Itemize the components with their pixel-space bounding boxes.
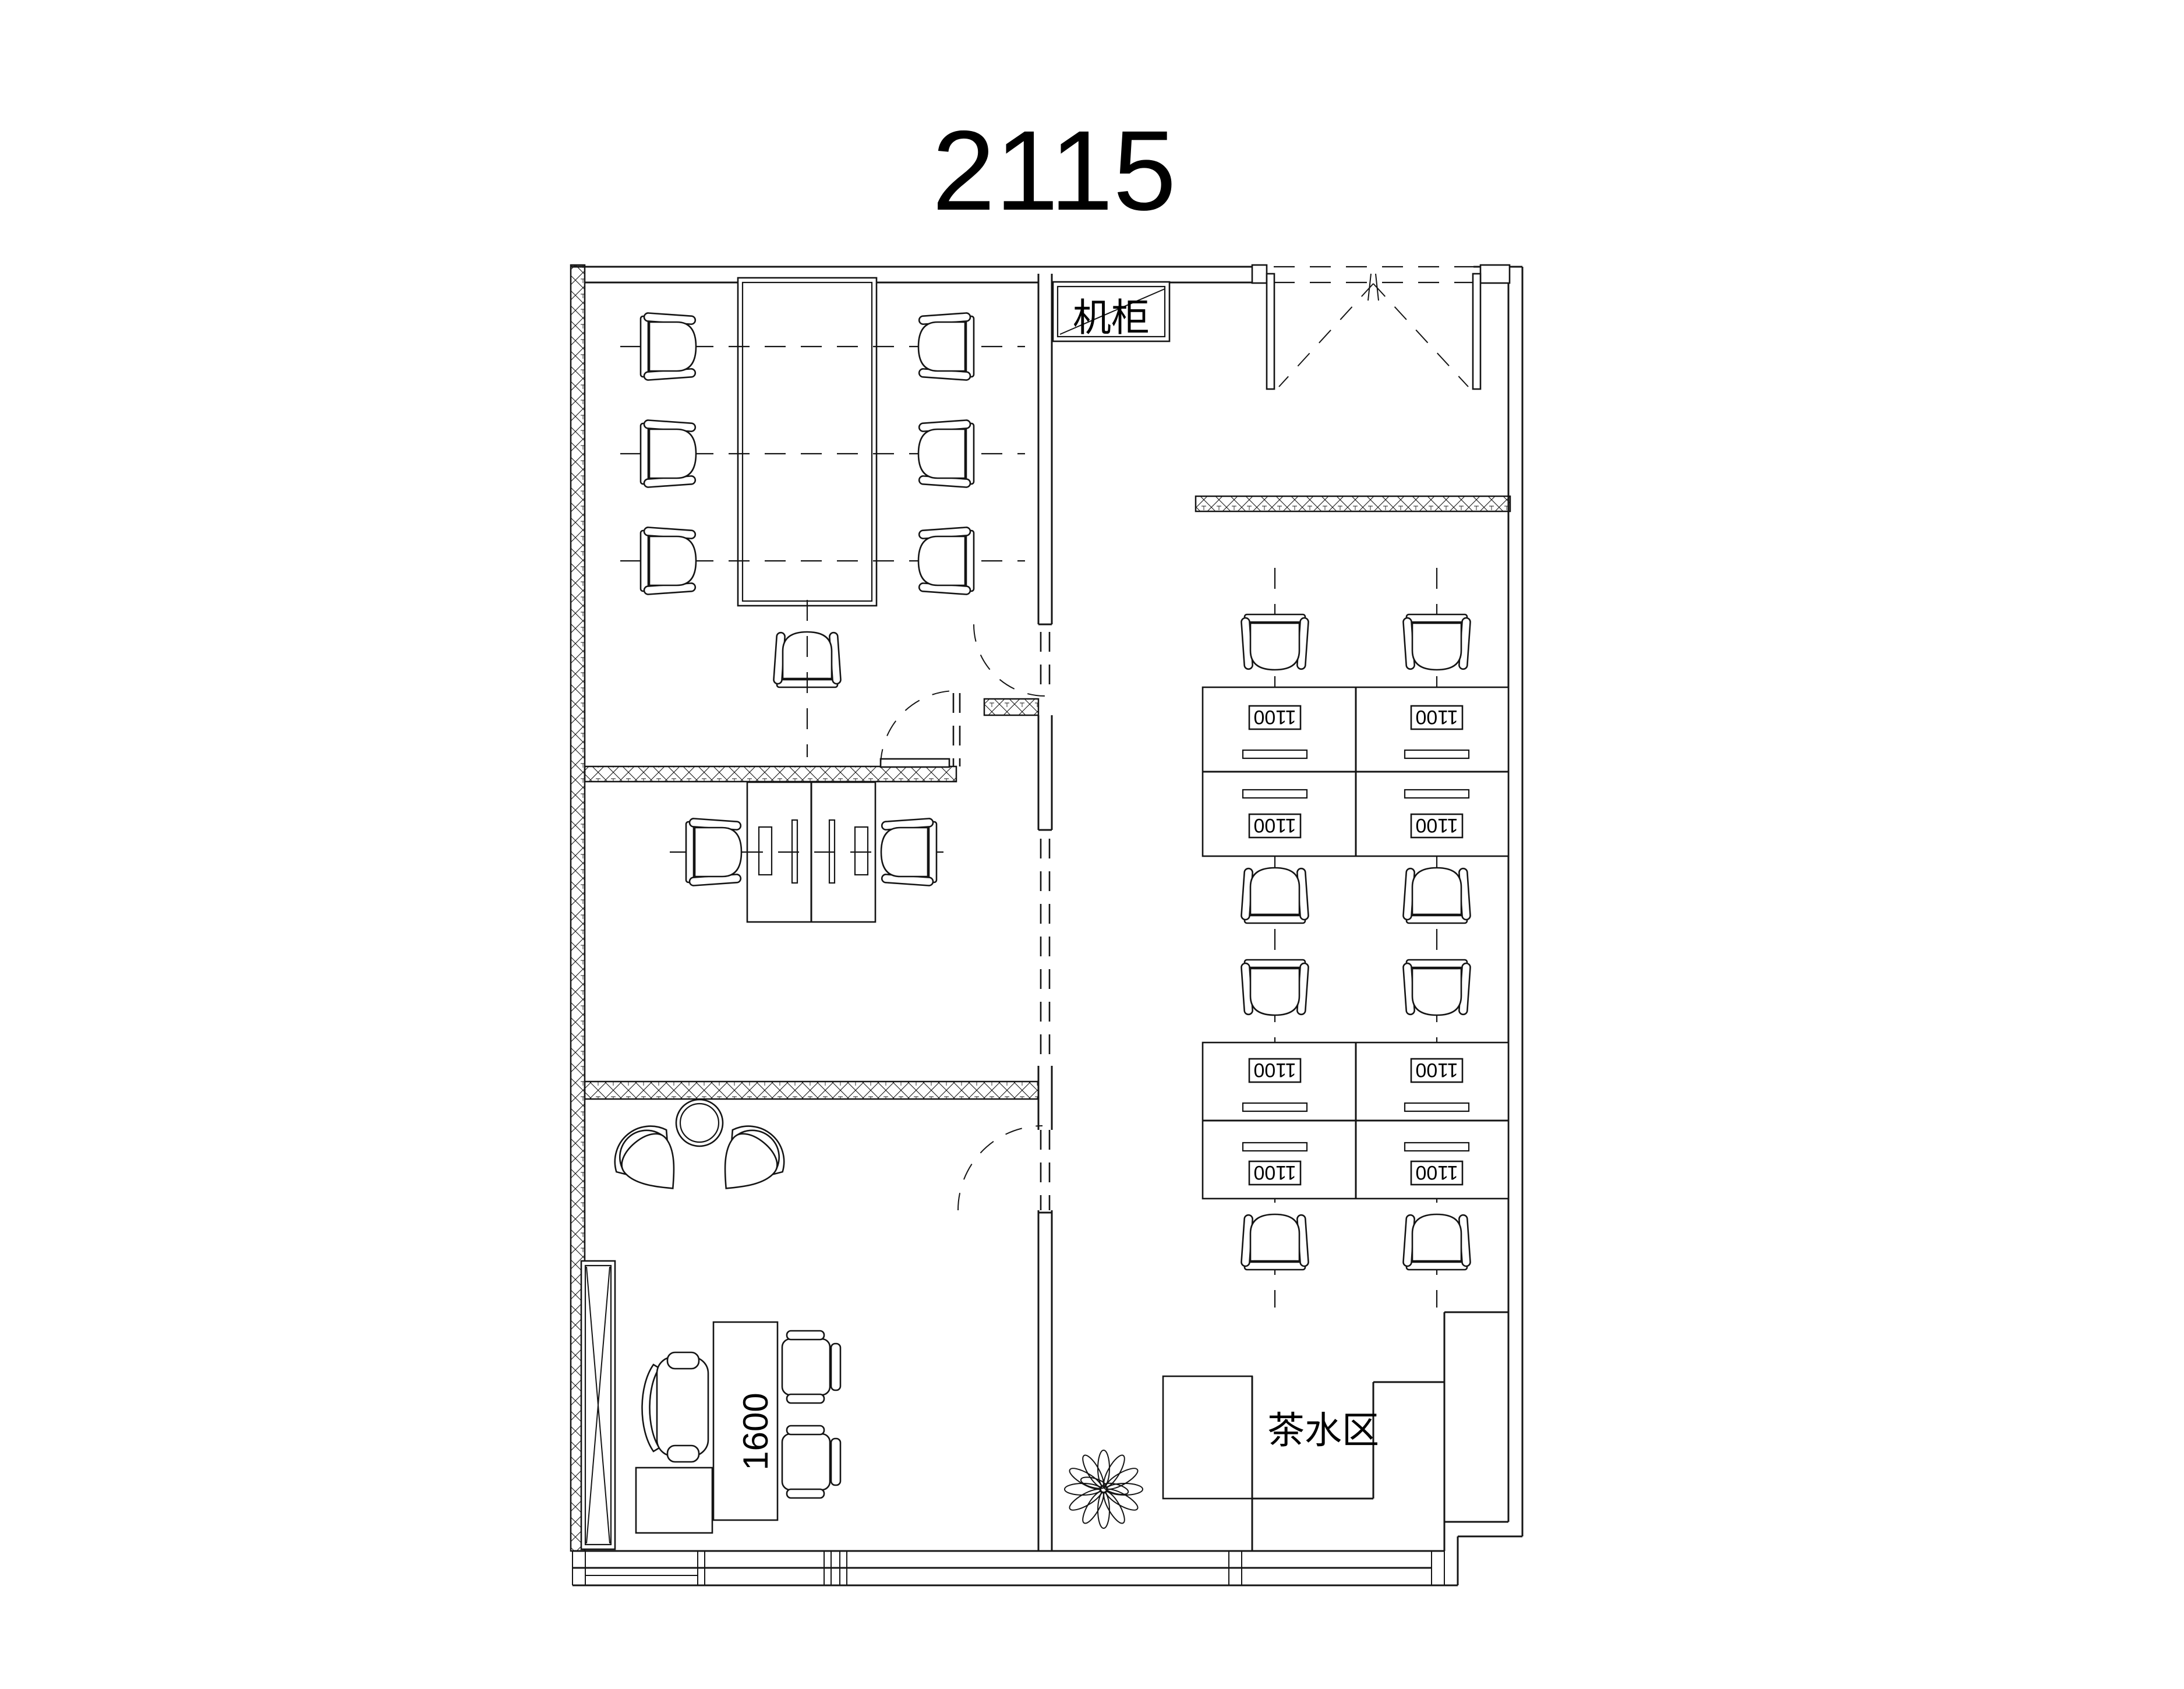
svg-text:1100: 1100 [1415, 1059, 1458, 1081]
tea-area-label: 茶水区 [1267, 1409, 1379, 1451]
task-chair [1403, 614, 1471, 670]
meeting-chair [641, 313, 696, 380]
entry-door-leaf-left [1267, 274, 1274, 389]
task-chair [1241, 868, 1309, 923]
meeting-chair [641, 527, 696, 595]
guest-chair [782, 1331, 840, 1403]
desk-dimension-label: 1600 [736, 1393, 775, 1470]
office-chair [881, 818, 936, 886]
svg-text:1100: 1100 [1253, 1161, 1296, 1183]
lounge-area [603, 1100, 797, 1209]
task-chair [1241, 960, 1309, 1015]
desk-size-tag: 1100 [1411, 814, 1462, 838]
svg-text:1100: 1100 [1415, 814, 1458, 836]
meeting-room-door-arc [974, 624, 1045, 696]
workstation-bank: 1100 1100 1100 1100 [1203, 1043, 1508, 1199]
svg-text:1100: 1100 [1415, 1161, 1458, 1183]
plant-icon [1065, 1450, 1143, 1528]
middle-office [670, 782, 955, 922]
open-office: 1100 1100 1100 1100 1100 1100 1100 1100 [1196, 496, 1510, 1308]
task-chair [1403, 960, 1471, 1015]
desk-return [636, 1468, 712, 1533]
entry-double-door [1267, 274, 1480, 389]
meeting-chair [641, 420, 696, 487]
entry-door-leaf-right [1473, 274, 1480, 389]
svg-text:1100: 1100 [1253, 814, 1296, 836]
svg-text:1100: 1100 [1253, 706, 1296, 728]
x-cabinet [581, 1261, 615, 1549]
office-door [881, 691, 960, 767]
round-side-table [676, 1100, 723, 1146]
task-chair [1241, 1214, 1309, 1270]
office-door-leaf [881, 759, 949, 767]
office-door-arc [881, 691, 956, 766]
screen-wall [1196, 496, 1510, 511]
task-chair [1241, 614, 1309, 670]
desk-size-tag: 1100 [1249, 1059, 1300, 1082]
meeting-office-divider-wall [585, 766, 956, 782]
lounge-top-wall [585, 1082, 1038, 1099]
meeting-room [620, 278, 1025, 757]
office-chair [686, 818, 741, 886]
meeting-chair [918, 313, 974, 380]
page-title: 2115 [932, 107, 1176, 234]
bottom-window-wall [572, 1551, 1458, 1585]
divider-stub-wall [984, 699, 1038, 715]
executive-office: 1600 [581, 1261, 840, 1549]
entry-right-jamb [1480, 265, 1510, 283]
task-chair [1403, 1214, 1471, 1270]
executive-desk: 1600 [713, 1322, 778, 1520]
desk-size-tag: 1100 [1411, 1059, 1462, 1082]
task-chair [1403, 868, 1471, 923]
desk-size-tag: 1100 [1411, 1161, 1462, 1185]
server-cabinet: 机柜 [1053, 282, 1169, 341]
lounge-door-arc [958, 1126, 1042, 1210]
desk-size-tag: 1100 [1249, 1161, 1300, 1185]
server-cabinet-label: 机柜 [1073, 296, 1150, 339]
entry-left-jamb [1252, 265, 1267, 283]
executive-chair [642, 1352, 709, 1462]
desk-size-tag: 1100 [1411, 706, 1462, 729]
meeting-chair [918, 527, 974, 595]
desk-size-tag: 1100 [1249, 814, 1300, 838]
guest-chair [782, 1426, 840, 1498]
corridor-partition [1038, 274, 1052, 1551]
workstation-bank: 1100 1100 1100 1100 [1203, 687, 1508, 856]
svg-text:1100: 1100 [1415, 706, 1458, 728]
meeting-chair [918, 420, 974, 487]
tea-area: 茶水区 [1163, 1312, 1508, 1551]
svg-text:1100: 1100 [1253, 1059, 1296, 1081]
desk-size-tag: 1100 [1249, 706, 1300, 729]
conference-table [738, 278, 877, 606]
tea-cabinet [1163, 1376, 1252, 1499]
floor-plan: 2115 [0, 0, 2184, 1689]
